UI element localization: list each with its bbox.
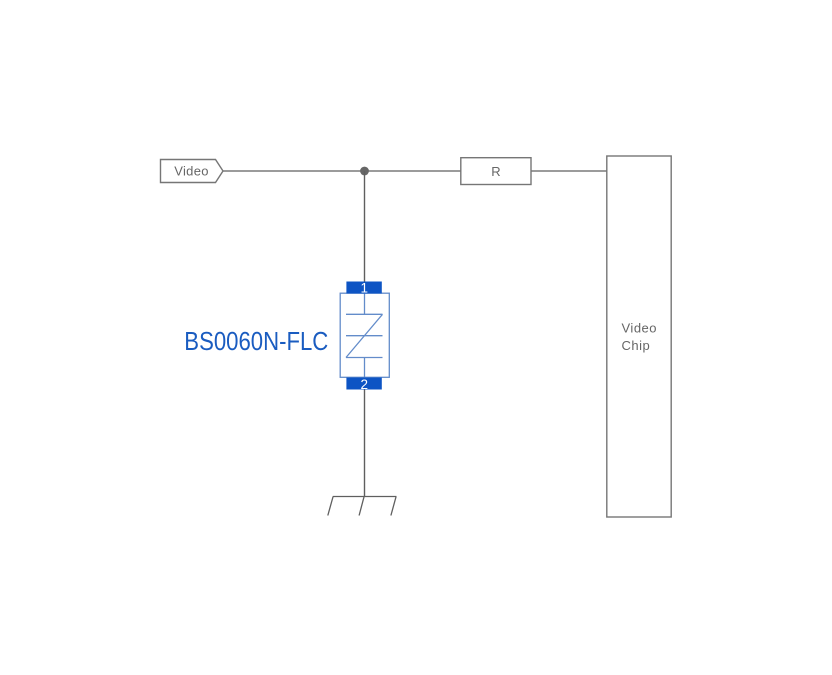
svg-text:1: 1 <box>361 280 369 295</box>
svg-text:2: 2 <box>361 377 369 392</box>
svg-text:Video: Video <box>622 321 658 336</box>
svg-text:R: R <box>491 164 500 179</box>
svg-text:BS0060N-FLC: BS0060N-FLC <box>184 326 328 356</box>
svg-text:Chip: Chip <box>622 338 651 353</box>
svg-text:Video: Video <box>174 164 209 179</box>
